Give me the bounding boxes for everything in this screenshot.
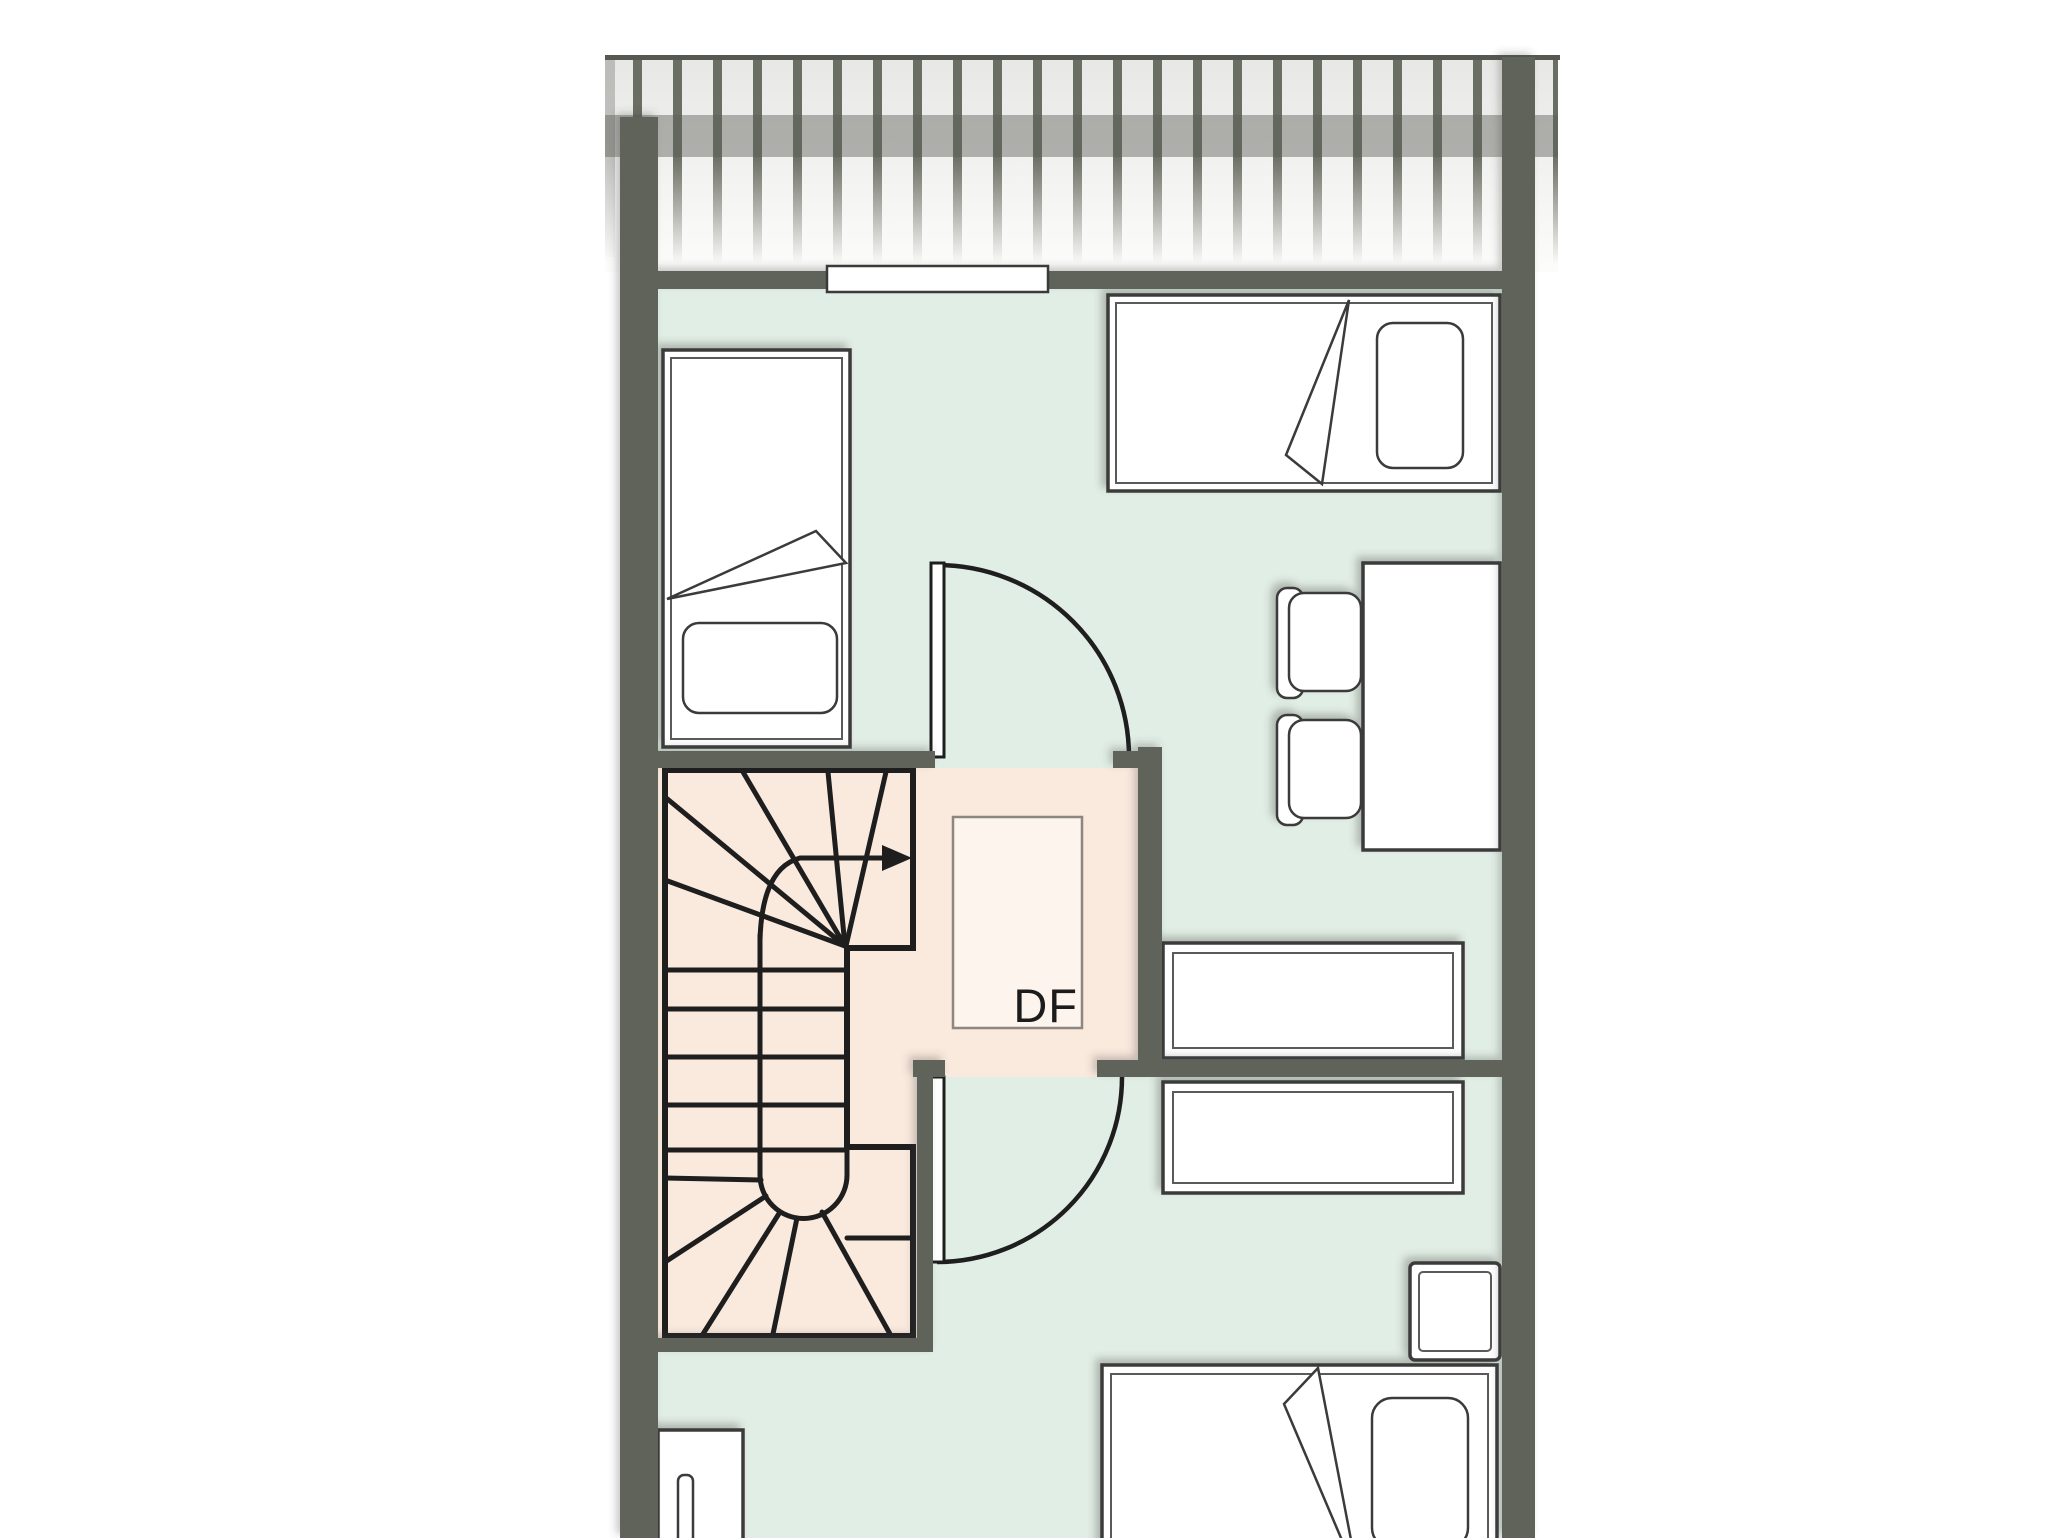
wall-landing-bottom-left-stub bbox=[913, 1060, 945, 1077]
dresser-lower bbox=[1163, 1082, 1463, 1193]
single-bed-horizontal bbox=[1108, 295, 1500, 491]
bed-pillow bbox=[1377, 323, 1463, 468]
wall-stair-top bbox=[620, 751, 935, 768]
wall-door-stub-top bbox=[1113, 751, 1140, 768]
single-bed-vertical bbox=[663, 350, 850, 747]
bed-pillow bbox=[1372, 1398, 1468, 1538]
skylight-label: DF bbox=[1013, 979, 1078, 1032]
wall-stair-right bbox=[917, 1077, 933, 1352]
wall-stair-bottom bbox=[640, 1338, 933, 1352]
skylight-roof-window: DF bbox=[953, 817, 1082, 1032]
roof-shadow-band bbox=[605, 115, 1558, 157]
chair-seat bbox=[1289, 720, 1361, 818]
roof-overhang-hatch bbox=[605, 55, 1560, 272]
wall-landing-right bbox=[1138, 747, 1162, 1077]
nightstand bbox=[1410, 1263, 1500, 1360]
chair-seat bbox=[1289, 593, 1361, 691]
window-top-wall bbox=[827, 266, 1048, 292]
floor-plan-canvas: DF bbox=[0, 0, 2048, 1538]
wall-left bbox=[620, 117, 658, 1538]
wall-top bbox=[620, 271, 1535, 289]
roof-stripes bbox=[615, 57, 1558, 272]
floor-plan-svg: DF bbox=[0, 0, 2048, 1538]
chair-lower bbox=[1277, 715, 1361, 825]
chair-upper bbox=[1277, 588, 1361, 698]
radiator bbox=[658, 1430, 743, 1538]
wall-landing-bottom bbox=[1097, 1060, 1502, 1077]
double-bed bbox=[1102, 1365, 1497, 1538]
bed-pillow bbox=[683, 623, 837, 713]
roof-ridge-line bbox=[605, 55, 1560, 60]
desk bbox=[1363, 563, 1500, 850]
door-leaf bbox=[931, 563, 944, 757]
radiator-fin bbox=[678, 1475, 693, 1538]
dresser-upper bbox=[1163, 943, 1463, 1058]
